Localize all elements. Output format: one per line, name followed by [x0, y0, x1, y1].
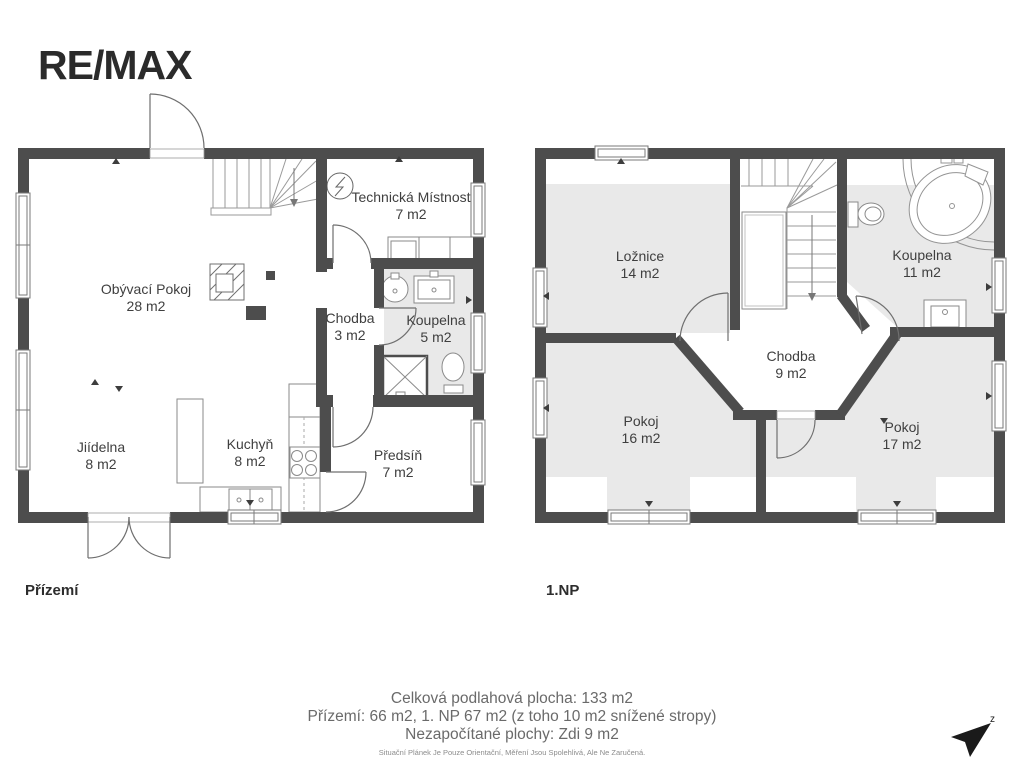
room-label-obyvaci-pokoj: Obývací Pokoj28 m2 — [101, 281, 191, 315]
stairs-icon — [741, 159, 837, 309]
bathroom-sink-square-icon — [414, 271, 454, 303]
window — [471, 313, 485, 373]
room-label-loznice: Ložnice14 m2 — [616, 248, 664, 282]
toilet-icon — [848, 202, 884, 227]
window — [533, 268, 547, 327]
window — [16, 193, 30, 298]
column-icon — [266, 271, 275, 280]
window — [858, 510, 936, 524]
floorplan-page: RE/MAX — [0, 0, 1024, 768]
summary-disclaimer: Situační Plánek Je Pouze Orientační, Měř… — [0, 748, 1024, 758]
window — [595, 146, 648, 160]
room-label-chodba-prizemi: Chodba3 m2 — [325, 310, 374, 344]
room16-shade — [546, 343, 756, 477]
room-label-koupelna-1np: Koupelna11 m2 — [892, 247, 951, 281]
boiler-icon — [327, 173, 353, 199]
room-label-chodba-1np: Chodba9 m2 — [766, 348, 815, 382]
room-label-jidelna: Jiídelna8 m2 — [77, 439, 125, 473]
room-label-koupelna-prizemi: Koupelna5 m2 — [406, 312, 465, 346]
room-label-pokoj-17: Pokoj17 m2 — [883, 419, 922, 453]
shower-icon — [383, 356, 427, 399]
window — [471, 420, 485, 485]
window — [992, 361, 1006, 431]
floor-label-1np: 1.NP — [546, 582, 579, 599]
room-label-kuchyn: Kuchyň8 m2 — [227, 436, 274, 470]
fireplace-icon — [210, 264, 244, 300]
floorplan-drawing: z — [0, 0, 1024, 768]
window — [16, 350, 30, 470]
room-label-predsin: Předsíň7 m2 — [374, 447, 422, 481]
summary-total-area: Celková podlahová plocha: 133 m2 — [0, 690, 1024, 708]
floor-label-prizemi: Přízemí — [25, 582, 78, 599]
column-icon — [246, 306, 266, 320]
window — [471, 183, 485, 237]
window — [992, 258, 1006, 313]
area-summary: Celková podlahová plocha: 133 m2 Přízemí… — [0, 690, 1024, 758]
window — [608, 510, 690, 524]
first-floor-plan — [533, 146, 1007, 524]
stairs-icon — [211, 159, 318, 215]
summary-floor-areas: Přízemí: 66 m2, 1. NP 67 m2 (z toho 10 m… — [0, 708, 1024, 726]
toilet-icon — [442, 353, 464, 393]
window — [228, 510, 281, 524]
room-label-technicka-mistnost: Technická Místnost7 m2 — [351, 189, 470, 223]
room-label-pokoj-16: Pokoj16 m2 — [622, 413, 661, 447]
summary-excluded-areas: Nezapočítané plochy: Zdi 9 m2 — [0, 726, 1024, 744]
